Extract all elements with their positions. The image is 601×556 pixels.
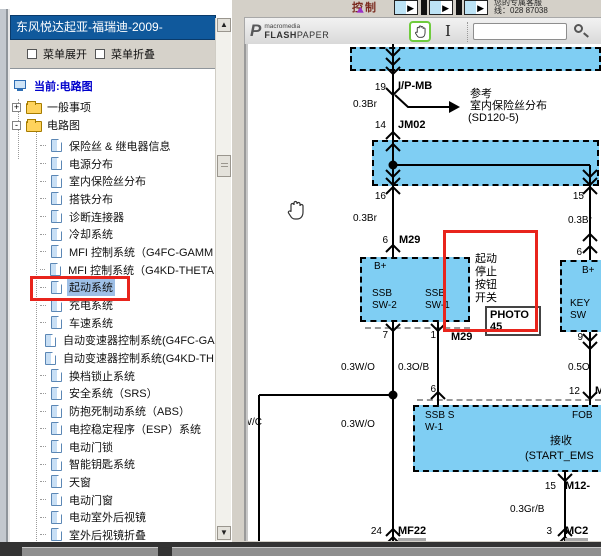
tree-item[interactable]: MFI 控制系统（G4FC-GAMM: [10, 243, 216, 261]
document-icon: [51, 387, 62, 400]
tree-connector: [40, 269, 45, 270]
diagram-label: 0.3W/O: [341, 419, 375, 431]
page-nav-icon[interactable]: ▶: [464, 0, 488, 15]
diagram-label: 0.3Br: [353, 99, 377, 111]
document-icon: [45, 334, 56, 347]
macromedia-logo: P macromedia FLASHPAPER: [250, 21, 329, 41]
diagram-label: I/P-MB: [398, 80, 432, 93]
diagram-label: 参考: [470, 88, 492, 101]
diagram-label: 9: [573, 332, 583, 344]
tree-item[interactable]: 防抱死制动系统（ABS）: [10, 402, 216, 420]
document-icon: [51, 369, 62, 382]
collapse-icon[interactable]: -: [12, 121, 21, 130]
tree-item-label: 诊断连接器: [67, 208, 126, 226]
tree-item[interactable]: 自动变速器控制系统(G4FC-GA: [10, 332, 216, 350]
diagram-label: 3: [542, 526, 552, 538]
tree-item-label: 电动门窗: [67, 491, 115, 509]
page-nav-icon[interactable]: ▶: [394, 0, 418, 15]
tree-connector: [40, 517, 46, 518]
search-icon[interactable]: [574, 24, 583, 33]
diagram-label: 15: [568, 191, 584, 203]
document-icon: [51, 157, 62, 170]
diagram-page[interactable]: 19I/P-MB0.3Br参考室内保险丝分布(SD120-5)14JM02161…: [248, 44, 601, 541]
tree-item[interactable]: 安全系统（SRS）: [10, 385, 216, 403]
bottom-bar: [0, 542, 601, 556]
tree-connector: [40, 305, 46, 306]
folder-icon: [26, 103, 42, 114]
diagram-label: JM02: [398, 119, 426, 132]
tree-item[interactable]: 冷却系统: [10, 225, 216, 243]
tree-connector: [40, 393, 46, 394]
diagram-label: M: [595, 385, 601, 398]
tree-item-label: 搭铁分布: [67, 190, 115, 208]
document-icon: [51, 175, 62, 188]
diagram-label: 0.3Br: [568, 215, 592, 227]
tree-current-node[interactable]: 当前:电路图: [14, 78, 93, 94]
tree-connector: [40, 163, 46, 164]
tree-item[interactable]: 电动门窗: [10, 491, 216, 509]
diagram-label: 0.3Br: [353, 213, 377, 225]
tree-item-label: 电动室外后视镜: [67, 508, 148, 526]
document-icon: [51, 422, 62, 435]
hand-tool-button[interactable]: [409, 21, 431, 42]
tree-item[interactable]: 电动室外后视镜: [10, 508, 216, 526]
brand-paper: PAPER: [297, 30, 329, 40]
diagram-label: 16: [370, 191, 386, 203]
diagram-label: SW-2: [372, 300, 397, 312]
document-icon: [51, 139, 62, 152]
diagram-label: 0.3W/C: [248, 417, 262, 429]
bottom-bar-segment: [172, 547, 601, 556]
document-icon: [51, 458, 62, 471]
tree-connector: [40, 216, 46, 217]
menu-expand-button[interactable]: 菜单展开: [27, 46, 87, 62]
hand-icon: [414, 24, 427, 39]
diagram-label: 室内保险丝分布: [470, 100, 547, 113]
tree-folder-general[interactable]: + 一般事项: [12, 99, 91, 115]
tree-connector: [40, 499, 46, 500]
document-icon: [51, 210, 62, 223]
toolbar-separator: [467, 22, 468, 42]
diagram-label: W-1: [425, 422, 443, 434]
document-icon: [51, 228, 62, 241]
menu-collapse-button[interactable]: 菜单折叠: [95, 46, 155, 62]
diagram-label: 12: [564, 386, 580, 398]
diagram-label: SSB: [425, 288, 445, 300]
tree-item[interactable]: 室内保险丝分布: [10, 172, 216, 190]
diagram-label: B+: [582, 265, 595, 277]
diagram-label: SSB: [372, 288, 392, 300]
diagram-label: 24: [366, 526, 382, 538]
menu-icon: [27, 49, 37, 59]
diagram-label: 0.5O: [568, 362, 590, 374]
current-node-label: 当前:电路图: [34, 78, 93, 94]
tree-item-label: 天窗: [67, 473, 93, 491]
document-icon: [50, 263, 61, 276]
tree-item-list: 保险丝 & 继电器信息电源分布室内保险丝分布搭铁分布诊断连接器冷却系统MFI 控…: [10, 137, 216, 542]
tree-item-label: 冷却系统: [67, 225, 115, 243]
document-icon: [51, 528, 62, 541]
tree-item-label: 电源分布: [67, 155, 115, 173]
tree-item-label: MFI 控制系统（G4FC-GAMM: [67, 243, 215, 261]
diagram-label: 6: [376, 235, 388, 247]
tree-connector: [40, 322, 46, 323]
folder-icon: [26, 121, 42, 132]
brand-flash: FLASH: [264, 30, 297, 40]
tree-connector: [40, 446, 46, 447]
tree-item-label: 自动变速器控制系统(G4KD-TH: [61, 349, 216, 367]
tree-connector: [40, 481, 46, 482]
tree-connector: [40, 428, 46, 429]
tree-item[interactable]: 自动变速器控制系统(G4KD-TH: [10, 349, 216, 367]
diagram-label: 0.3Gr/B: [510, 504, 544, 516]
menu-icon: [95, 49, 105, 59]
diagram-label: FOB: [572, 410, 593, 422]
tree-item-label: 保险丝 & 继电器信息: [67, 137, 172, 155]
diagram-label: MF22: [398, 525, 426, 541]
document-icon: [51, 440, 62, 453]
sidebar-frame: [0, 9, 10, 542]
tree-item[interactable]: 换档锁止系统: [10, 367, 216, 385]
tree-item-label: 安全系统（SRS）: [67, 384, 160, 402]
tree-item[interactable]: 保险丝 & 继电器信息: [10, 137, 216, 155]
folder-label: 电路图: [47, 117, 80, 133]
tree-item[interactable]: 电控稳定程序（ESP）系统: [10, 420, 216, 438]
diagram-label: B+: [374, 261, 387, 273]
document-icon: [51, 475, 62, 488]
diagram-label: 7: [376, 330, 388, 342]
screen: 控制 ▶ ▶ ▶ 您的专属客服 线：028 87038 东风悦达起亚-福瑞迪-2…: [0, 0, 601, 556]
document-icon: [51, 316, 62, 329]
computer-icon: [14, 80, 28, 92]
annotation-box-sidebar: [30, 276, 130, 301]
tree-item-label: 电动门锁: [67, 438, 115, 456]
tree-item[interactable]: 智能钥匙系统: [10, 455, 216, 473]
tree-item-label: 室外后视镜折叠: [67, 526, 148, 542]
expand-icon[interactable]: +: [12, 103, 21, 112]
tree-item-label: 电控稳定程序（ESP）系统: [67, 420, 203, 438]
diagram-label: 接收: [550, 435, 572, 448]
document-icon: [51, 511, 62, 524]
tree-connector: [40, 534, 46, 535]
tree-item[interactable]: 天窗: [10, 473, 216, 491]
scroll-up-button[interactable]: ▲: [217, 18, 231, 32]
service-text: 您的专属客服 线：028 87038: [494, 0, 601, 15]
diagram-label: 14: [370, 120, 386, 132]
tree-item[interactable]: 室外后视镜折叠: [10, 526, 216, 542]
annotation-box-diagram: [443, 230, 538, 332]
diagram-label: KEY: [570, 298, 590, 310]
flashpaper-window: P macromedia FLASHPAPER I: [232, 15, 601, 542]
scrollbar-thumb[interactable]: [217, 155, 231, 177]
tree-item-label: 车速系统: [67, 314, 115, 332]
tree-item[interactable]: 电动门锁: [10, 438, 216, 456]
sidebar-menu-row: 菜单展开 菜单折叠: [10, 40, 216, 69]
document-icon: [45, 352, 56, 365]
hand-cursor: [286, 199, 306, 226]
tree-connector: [40, 145, 46, 146]
document-icon: [51, 493, 62, 506]
tree-connector: [40, 411, 46, 412]
diagram-label: (SD120-5): [468, 112, 519, 125]
search-input[interactable]: [473, 23, 567, 40]
flashpaper-toolbar: P macromedia FLASHPAPER I: [244, 17, 601, 45]
tree-item[interactable]: 电源分布: [10, 155, 216, 173]
tree-item-label: 自动变速器控制系统(G4FC-GA: [61, 331, 216, 349]
tree-connector: [40, 234, 46, 235]
tree-connector: [40, 464, 46, 465]
diagram-label: (START_EMS: [525, 450, 594, 463]
diagram-label: 0.3O/B: [398, 362, 429, 374]
diagram-label: 15: [540, 481, 556, 493]
tree-folder-circuit[interactable]: - 电路图: [12, 117, 80, 133]
tree-item-label: 室内保险丝分布: [67, 172, 148, 190]
navigation-tree: 当前:电路图 + 一般事项 - 电路图 保险丝 & 继电器信息电源分布室内保险丝…: [10, 69, 216, 542]
diagram-label: 19: [370, 82, 386, 94]
diagram-label: 6: [570, 247, 582, 259]
tree-connector: [40, 198, 46, 199]
divider: [421, 0, 427, 15]
diagram-label: 6: [424, 384, 436, 396]
bottom-bar-segment: [22, 547, 158, 556]
page-nav-icon[interactable]: ▶: [429, 0, 453, 15]
divider: [456, 0, 462, 15]
tree-connector: [40, 181, 46, 182]
diagram-label: MC2: [565, 525, 588, 541]
menu-expand-label: 菜单展开: [43, 46, 87, 62]
menu-collapse-label: 菜单折叠: [111, 46, 155, 62]
folder-label: 一般事项: [47, 99, 91, 115]
diagram-label: M29: [451, 331, 472, 344]
diagram-label: M12-: [565, 480, 590, 493]
scroll-down-button[interactable]: ▼: [217, 526, 231, 540]
tree-connector: [40, 251, 46, 252]
diagram-label: SSB S: [425, 410, 454, 422]
tree-item-label: 智能钥匙系统: [67, 455, 137, 473]
sidebar-title: 东风悦达起亚-福瑞迪-2009-: [10, 15, 216, 40]
document-icon: [51, 245, 62, 258]
diagram-label: SW: [570, 310, 586, 322]
sidebar-scrollbar[interactable]: ▲ ▼: [215, 18, 231, 541]
document-icon: [51, 405, 62, 418]
tree-item[interactable]: 车速系统: [10, 314, 216, 332]
tree-item-label: 换档锁止系统: [67, 367, 137, 385]
tree-connector: [40, 375, 46, 376]
diagram-label: 0.3W/O: [341, 362, 375, 374]
document-icon: [51, 192, 62, 205]
text-select-tool-button[interactable]: I: [441, 21, 455, 42]
tree-item-label: 防抱死制动系统（ABS）: [67, 402, 192, 420]
logo-glyph: P: [250, 21, 261, 41]
sidebar: 东风悦达起亚-福瑞迪-2009- 菜单展开 菜单折叠 当前:电路图 + 一般事项: [0, 0, 232, 542]
diagram-label: 1: [428, 330, 436, 342]
tree-item[interactable]: 诊断连接器: [10, 208, 216, 226]
tree-item[interactable]: 搭铁分布: [10, 190, 216, 208]
diagram-label: M29: [399, 234, 420, 247]
